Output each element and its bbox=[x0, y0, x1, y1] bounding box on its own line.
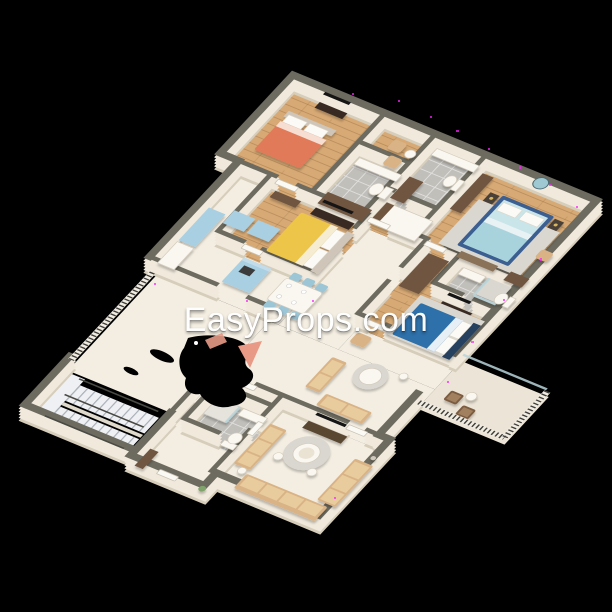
watermark-text: EasyProps.com bbox=[184, 301, 429, 340]
floorplan-scene: EasyProps.com bbox=[0, 0, 612, 612]
white-dot bbox=[194, 341, 198, 345]
